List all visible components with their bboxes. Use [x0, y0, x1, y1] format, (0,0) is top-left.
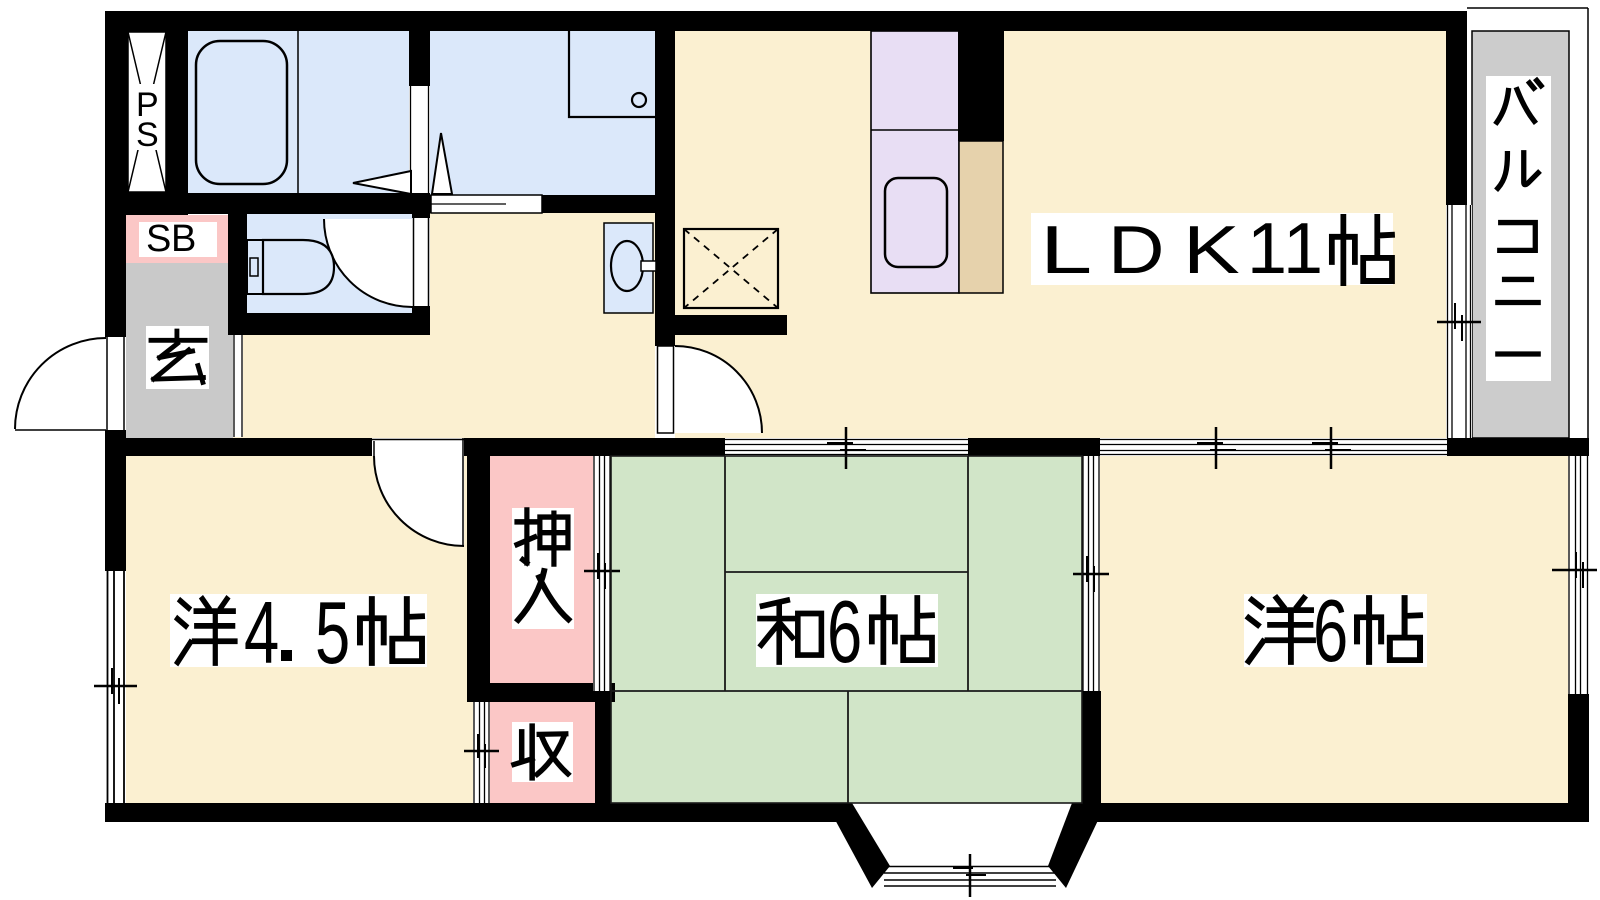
svg-text:B: B — [171, 218, 196, 260]
svg-text:6: 6 — [1313, 583, 1348, 681]
svg-text:K: K — [1183, 212, 1240, 288]
svg-text:6: 6 — [827, 584, 862, 682]
svg-text:L: L — [1040, 212, 1092, 288]
svg-text:S: S — [136, 116, 159, 154]
svg-text:5: 5 — [315, 585, 350, 683]
svg-text:S: S — [146, 218, 171, 260]
svg-text:4: 4 — [244, 585, 279, 683]
svg-text:1: 1 — [1247, 209, 1287, 289]
svg-text:1: 1 — [1283, 209, 1323, 289]
svg-text:D: D — [1108, 212, 1164, 288]
